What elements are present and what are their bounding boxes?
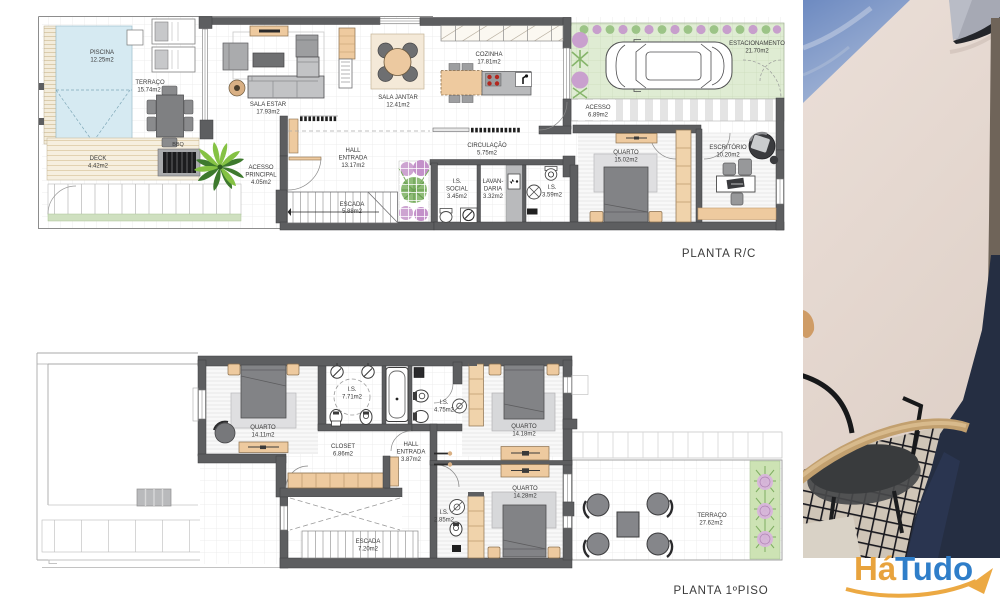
svg-text:5.75m2: 5.75m2 (477, 151, 498, 157)
svg-text:6.86m2: 6.86m2 (333, 452, 354, 458)
svg-text:TERRAÇO: TERRAÇO (135, 80, 165, 86)
svg-text:I.S.: I.S. (439, 510, 448, 516)
svg-text:14.11m2: 14.11m2 (252, 433, 276, 439)
svg-text:15.74m2: 15.74m2 (137, 88, 161, 94)
svg-text:10.20m2: 10.20m2 (716, 153, 740, 159)
svg-text:CIRCULAÇÃO: CIRCULAÇÃO (467, 142, 507, 149)
svg-text:15.02m2: 15.02m2 (614, 158, 638, 164)
svg-text:QUARTO: QUARTO (512, 486, 538, 492)
svg-text:Tudo: Tudo (895, 550, 973, 587)
svg-text:PISCINA: PISCINA (90, 50, 114, 56)
svg-text:7.20m2: 7.20m2 (358, 547, 379, 553)
svg-text:4.05m2: 4.05m2 (251, 180, 272, 186)
svg-text:ENTRADA: ENTRADA (397, 450, 426, 456)
svg-text:ESCRITÓRIO: ESCRITÓRIO (709, 144, 747, 151)
svg-text:DARIA: DARIA (484, 187, 502, 193)
svg-text:ACESSO: ACESSO (248, 165, 273, 171)
svg-text:Há: Há (854, 550, 897, 587)
svg-text:PLANTA R/C: PLANTA R/C (682, 248, 756, 260)
svg-text:QUARTO: QUARTO (613, 150, 639, 156)
svg-text:2.85m2: 2.85m2 (434, 518, 455, 524)
svg-text:SALA JANTAR: SALA JANTAR (378, 95, 418, 101)
svg-text:4.75m2: 4.75m2 (434, 408, 455, 414)
svg-text:12.25m2: 12.25m2 (90, 58, 114, 64)
svg-text:I.S.: I.S. (439, 400, 448, 406)
svg-text:QUARTO: QUARTO (511, 424, 537, 430)
svg-text:27.62m2: 27.62m2 (699, 521, 723, 527)
svg-text:ESCADA: ESCADA (340, 202, 365, 208)
svg-text:HALL: HALL (345, 148, 361, 154)
svg-text:3.87m2: 3.87m2 (401, 457, 422, 463)
svg-text:5.88m2: 5.88m2 (342, 209, 363, 215)
svg-text:3.32m2: 3.32m2 (483, 194, 504, 200)
svg-text:I.S.: I.S. (347, 387, 356, 393)
svg-text:13.17m2: 13.17m2 (341, 163, 365, 169)
svg-text:HALL: HALL (403, 442, 419, 448)
svg-text:DECK: DECK (90, 156, 107, 162)
svg-text:LAVAN-: LAVAN- (483, 179, 504, 185)
svg-text:21.70m2: 21.70m2 (745, 49, 769, 55)
svg-text:QUARTO: QUARTO (250, 425, 276, 431)
svg-text:ACESSO: ACESSO (585, 105, 610, 111)
svg-text:ENTRADA: ENTRADA (339, 156, 368, 162)
svg-text:TERRAÇO: TERRAÇO (697, 513, 727, 519)
svg-text:4.42m2: 4.42m2 (88, 164, 109, 170)
svg-text:3.59m2: 3.59m2 (542, 193, 563, 199)
svg-text:SOCIAL: SOCIAL (446, 187, 469, 193)
svg-text:I.S.: I.S. (452, 179, 461, 185)
svg-text:COZINHA: COZINHA (476, 52, 503, 58)
svg-text:17.81m2: 17.81m2 (477, 60, 501, 66)
svg-text:3.45m2: 3.45m2 (447, 194, 468, 200)
svg-text:PRINCIPAL: PRINCIPAL (245, 173, 277, 179)
svg-text:17.93m2: 17.93m2 (256, 110, 280, 116)
svg-text:7.71m2: 7.71m2 (342, 395, 363, 401)
svg-text:ESTACIONAMENTO: ESTACIONAMENTO (729, 41, 785, 47)
svg-text:6.89m2: 6.89m2 (588, 113, 609, 119)
svg-text:I.S.: I.S. (547, 185, 556, 191)
svg-text:14.18m2: 14.18m2 (512, 432, 536, 438)
svg-text:SALA ESTAR: SALA ESTAR (250, 102, 287, 108)
svg-text:ESCADA: ESCADA (356, 539, 381, 545)
svg-text:12.41m2: 12.41m2 (386, 103, 410, 109)
svg-text:BBQ: BBQ (172, 142, 184, 148)
svg-text:14.28m2: 14.28m2 (513, 494, 537, 500)
svg-text:CLOSET: CLOSET (331, 444, 355, 450)
svg-text:PLANTA 1ºPISO: PLANTA 1ºPISO (674, 585, 769, 597)
